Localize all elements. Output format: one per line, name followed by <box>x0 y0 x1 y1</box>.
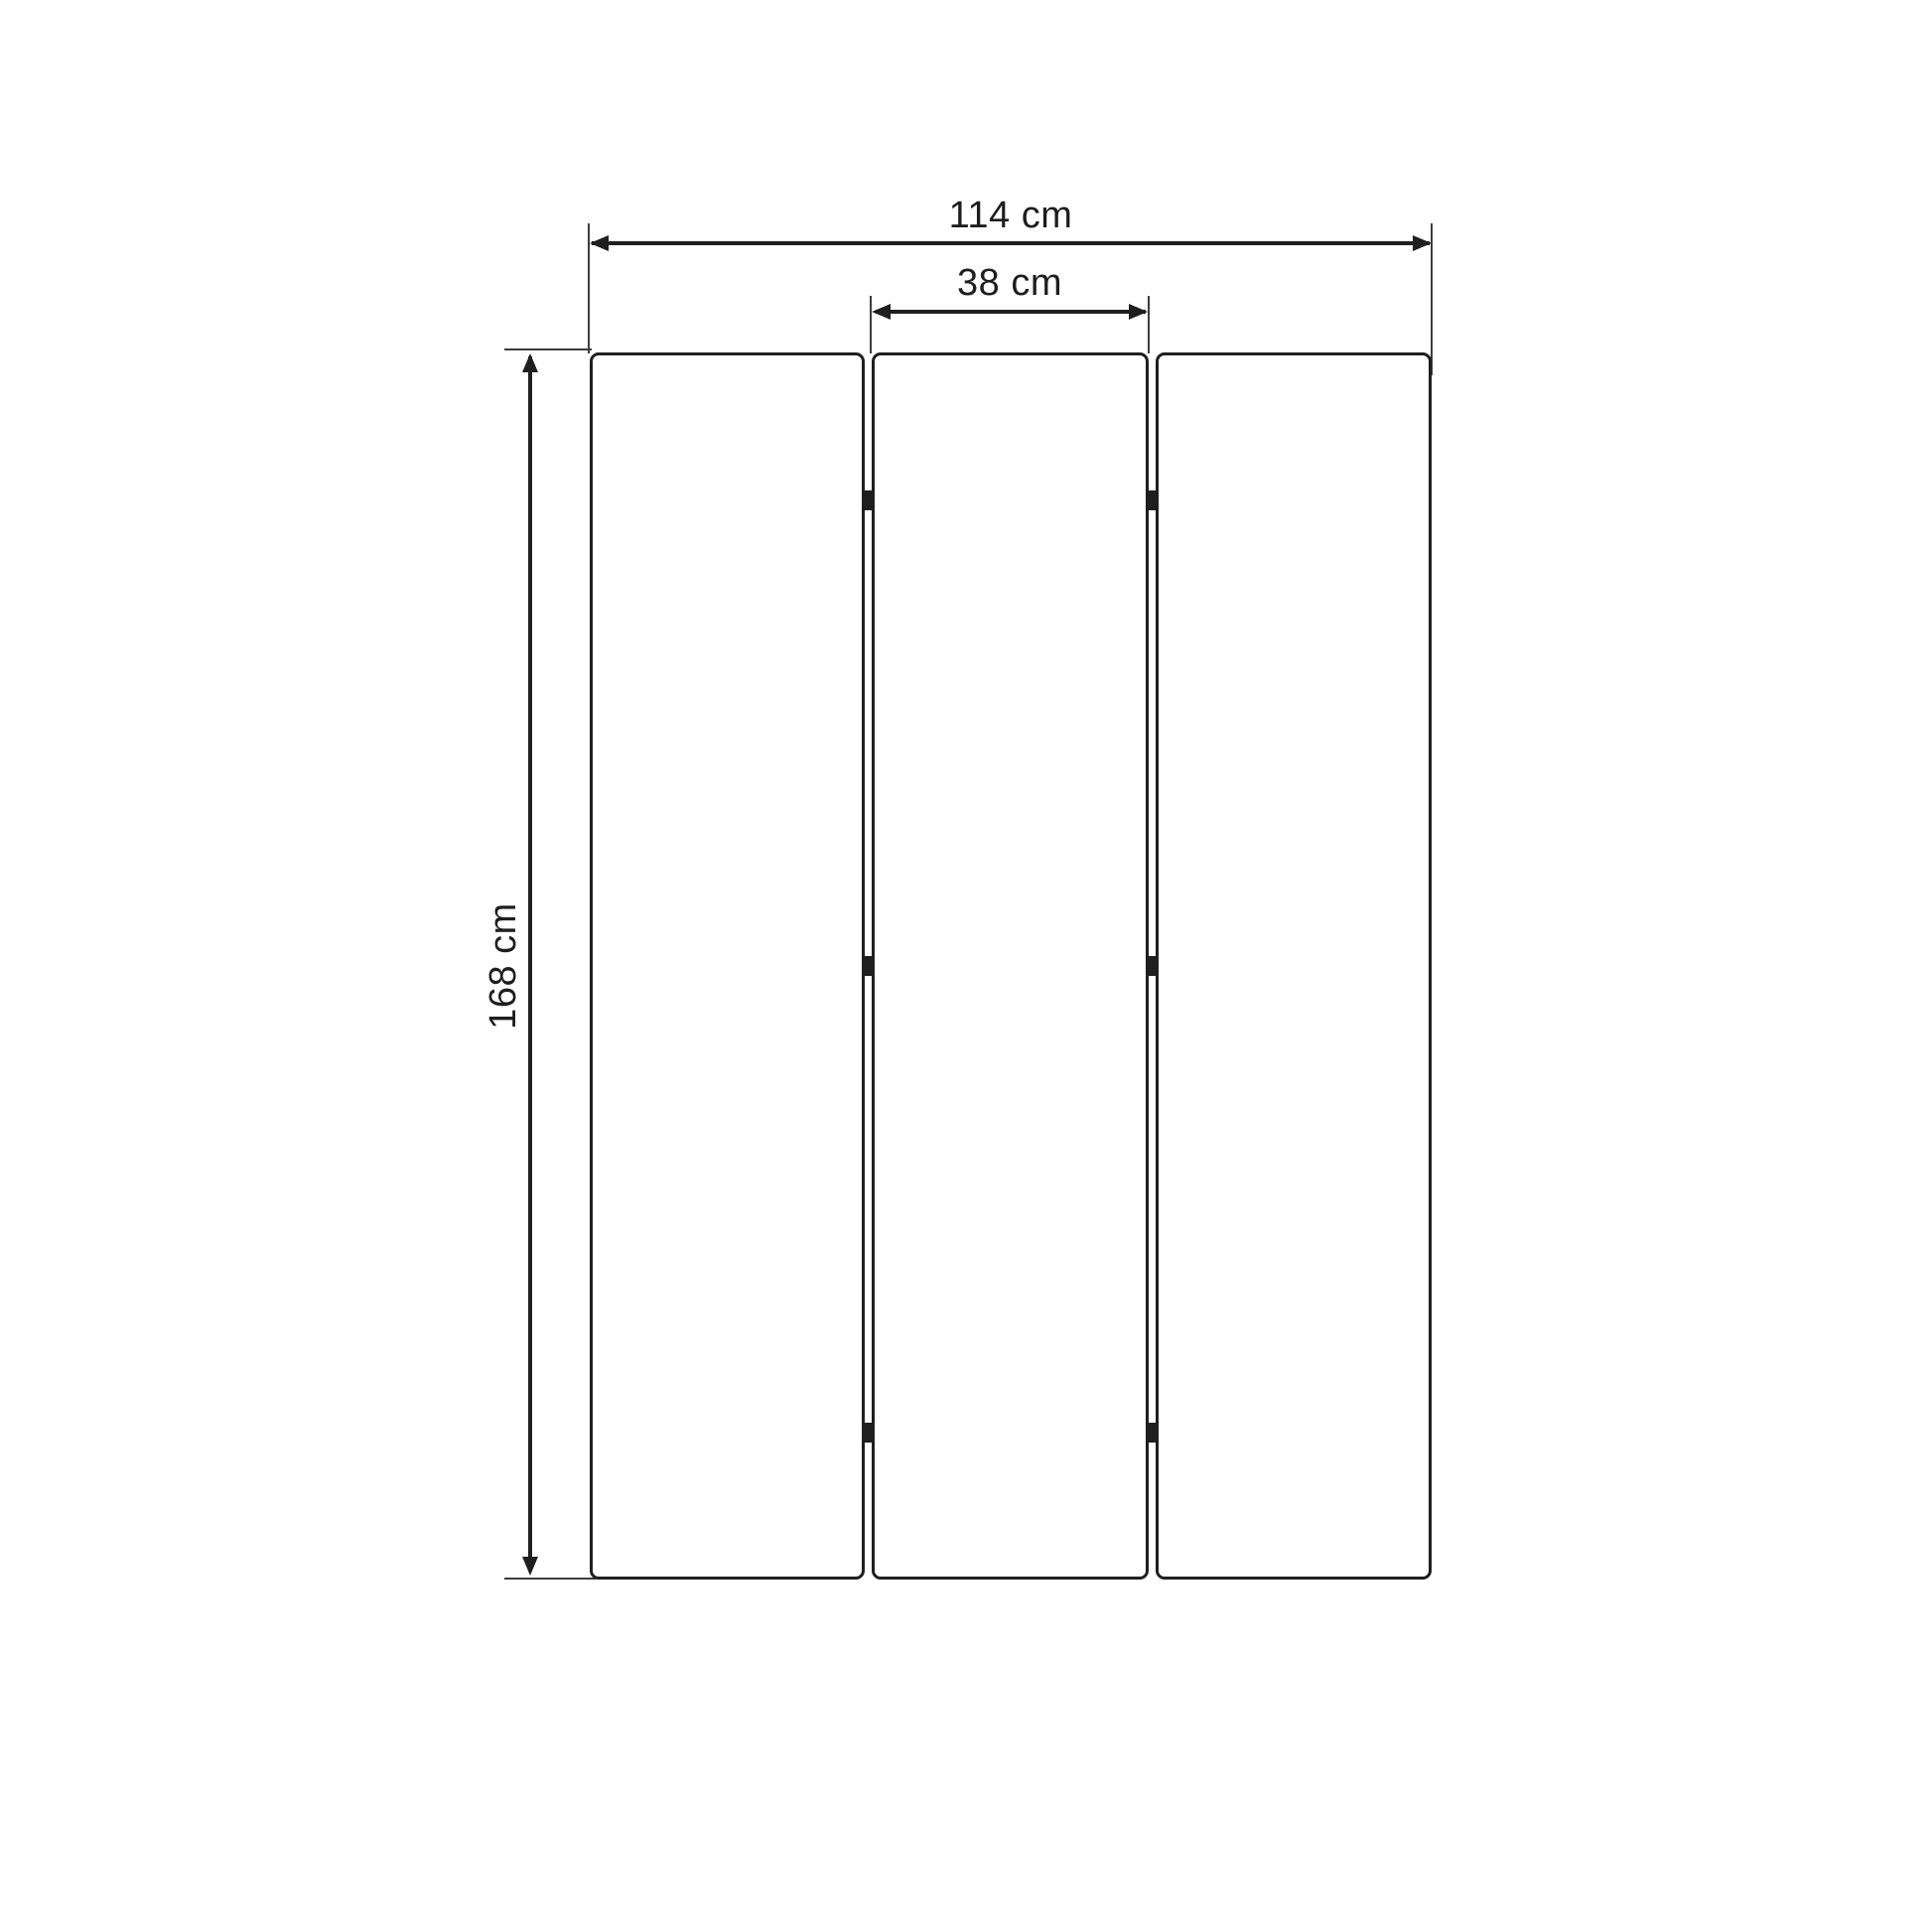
screen-panel-center <box>872 352 1149 1580</box>
hinge-right-gap-bottom <box>1146 1423 1158 1443</box>
hinge-left-gap-top <box>862 490 874 510</box>
arrowhead-left-icon <box>872 304 891 320</box>
panel-width-dimension-line <box>876 310 1146 314</box>
hinge-left-gap-bottom <box>862 1423 874 1443</box>
screen-panel-left <box>590 352 865 1580</box>
height-dimension-label: 168 cm <box>484 902 522 1030</box>
hinge-right-gap-middle <box>1146 956 1158 976</box>
arrowhead-right-icon <box>1413 235 1432 251</box>
extension-line-panel-width-right <box>1148 296 1150 353</box>
extension-line-height-top <box>504 348 592 350</box>
total-width-dimension-label: 114 cm <box>949 197 1073 234</box>
hinge-left-gap-middle <box>862 956 874 976</box>
arrowhead-up-icon <box>522 353 538 372</box>
panel-width-dimension-label: 38 cm <box>957 264 1062 302</box>
hinge-right-gap-top <box>1146 490 1158 510</box>
arrowhead-down-icon <box>522 1557 538 1576</box>
arrowhead-left-icon <box>590 235 609 251</box>
screen-panel-right <box>1156 352 1432 1580</box>
arrowhead-right-icon <box>1129 304 1148 320</box>
height-dimension-line <box>528 356 532 1572</box>
extension-line-height-bottom <box>504 1578 596 1580</box>
total-width-dimension-line <box>592 241 1430 245</box>
dimension-drawing-canvas: 114 cm 38 cm 168 cm <box>0 0 1932 1932</box>
